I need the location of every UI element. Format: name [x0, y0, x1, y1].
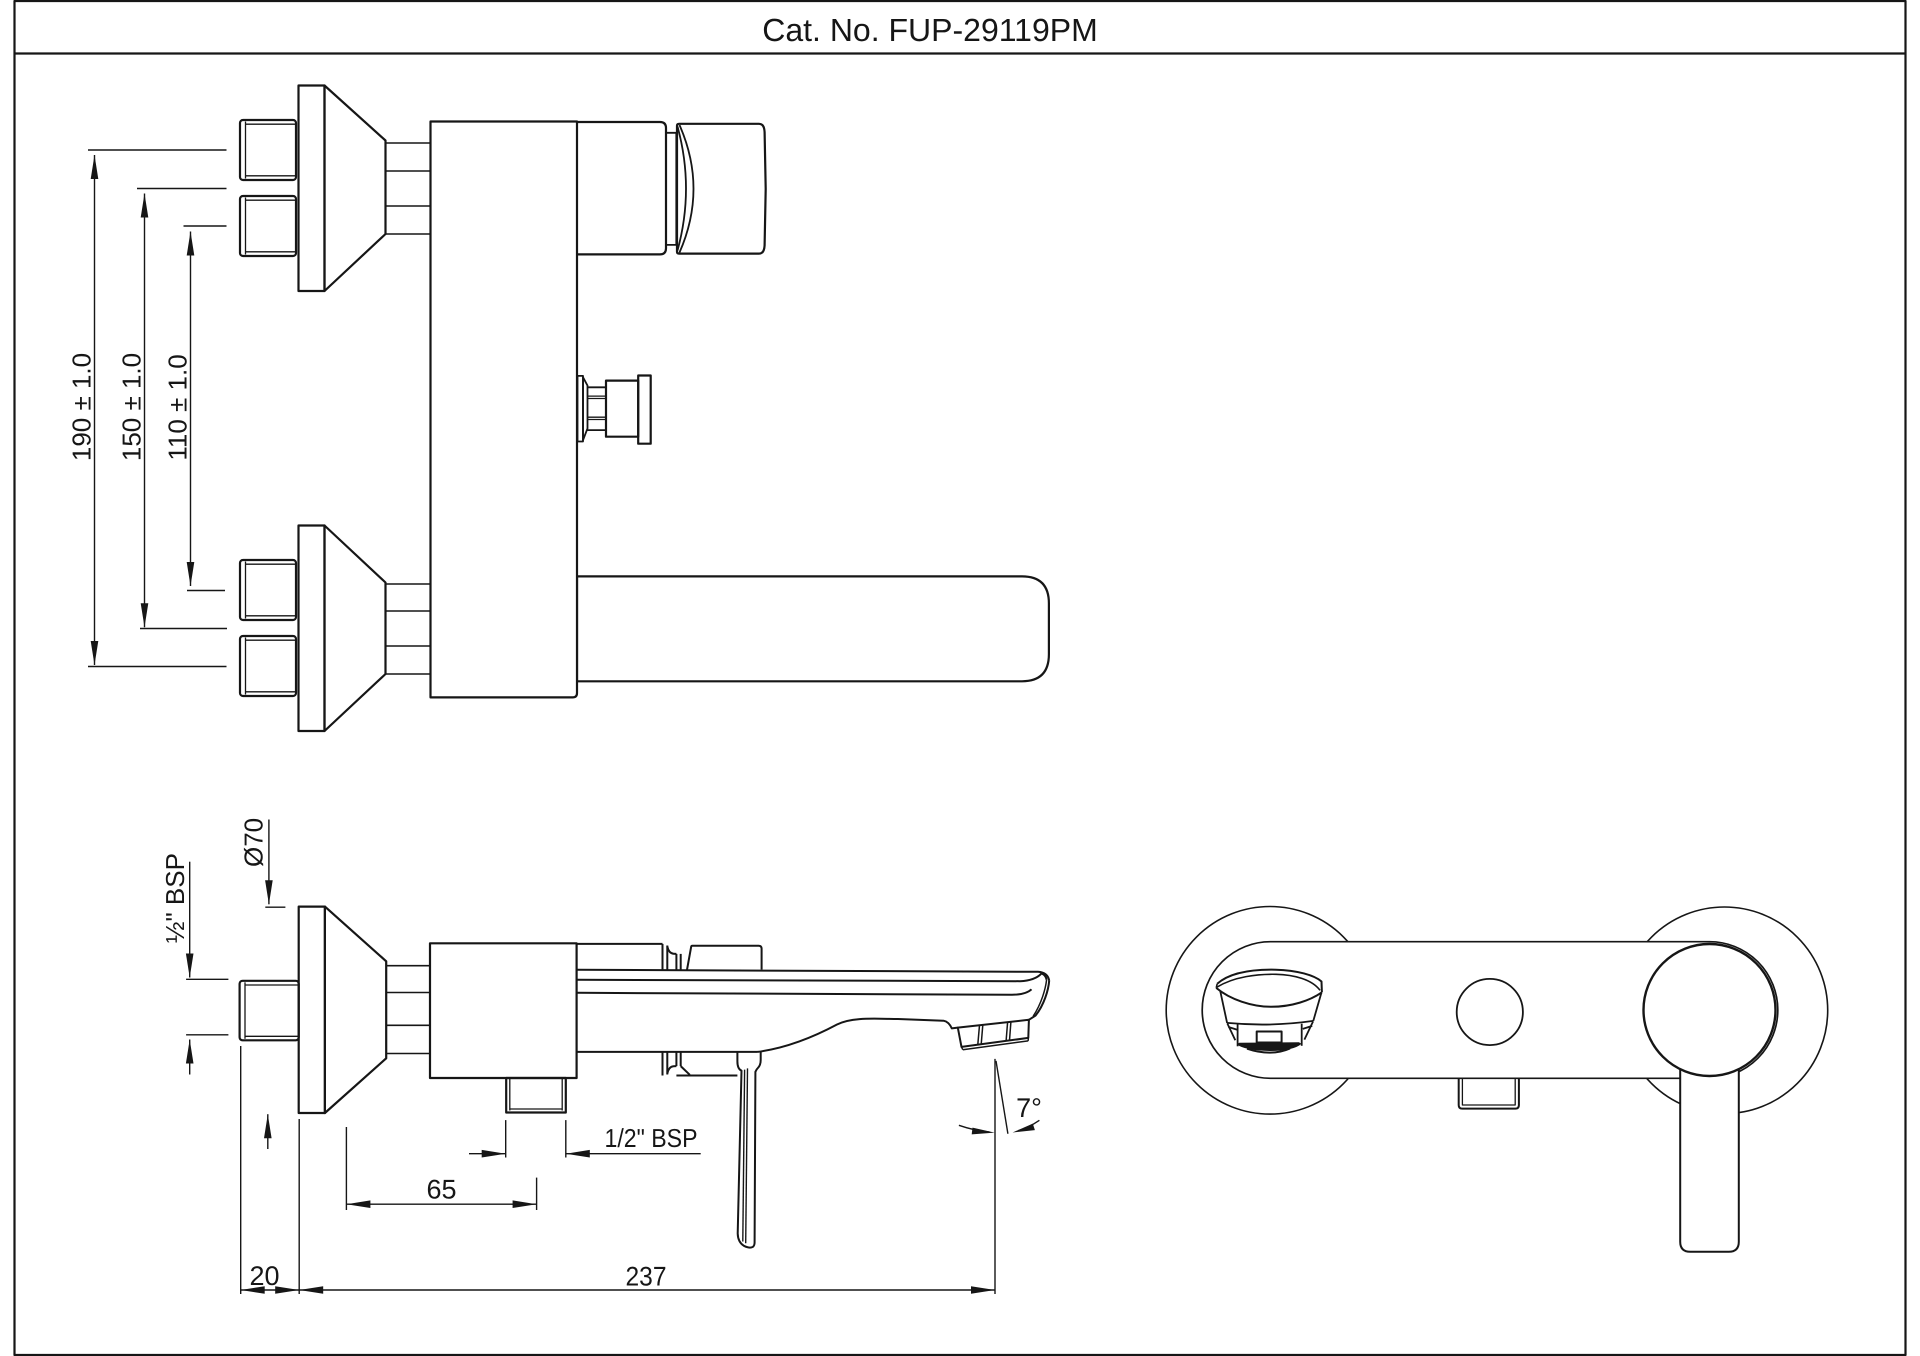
svg-text:150 ± 1.0: 150 ± 1.0: [117, 353, 147, 461]
svg-text:½" BSP: ½" BSP: [160, 853, 190, 943]
svg-text:7°: 7°: [1016, 1093, 1042, 1123]
svg-text:Ø70: Ø70: [239, 818, 269, 867]
svg-text:190 ± 1.0: 190 ± 1.0: [67, 353, 97, 461]
svg-text:1/2" BSP: 1/2" BSP: [605, 1123, 698, 1153]
svg-text:Cat. No. FUP-29119PM: Cat. No. FUP-29119PM: [762, 12, 1098, 48]
svg-text:237: 237: [626, 1262, 667, 1292]
svg-text:110 ± 1.0: 110 ± 1.0: [163, 354, 193, 460]
svg-text:20: 20: [249, 1261, 279, 1291]
svg-text:65: 65: [426, 1175, 456, 1205]
